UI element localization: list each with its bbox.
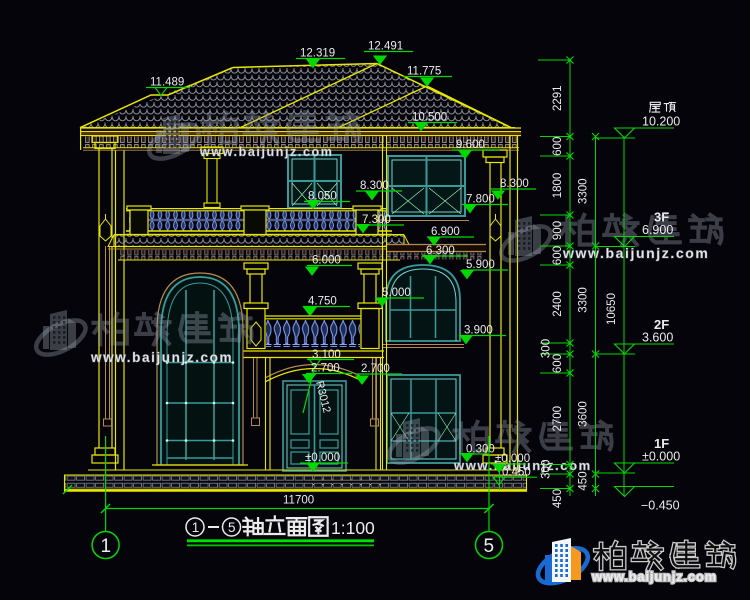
svg-text:2.700: 2.700 [361, 363, 390, 375]
svg-text:www.baijunjz.com: www.baijunjz.com [199, 145, 333, 159]
svg-text:2700: 2700 [552, 406, 564, 432]
svg-text:3300: 3300 [578, 178, 590, 204]
svg-text:10650: 10650 [606, 293, 618, 325]
svg-text:www.baijunjz.com: www.baijunjz.com [90, 350, 233, 365]
svg-text:11.489: 11.489 [150, 77, 184, 89]
svg-text:3600: 3600 [578, 401, 590, 427]
svg-text:12.491: 12.491 [368, 41, 403, 53]
svg-text:600: 600 [552, 354, 564, 373]
svg-text:4.750: 4.750 [308, 296, 337, 308]
svg-text:10.200: 10.200 [642, 115, 680, 129]
svg-text:450: 450 [552, 489, 564, 508]
svg-text:300: 300 [541, 339, 553, 358]
svg-text:5: 5 [484, 536, 495, 557]
svg-text:2291: 2291 [552, 85, 564, 111]
svg-text:www.baijunjz.com: www.baijunjz.com [591, 569, 717, 584]
svg-text:11700: 11700 [283, 495, 314, 507]
svg-text:9.600: 9.600 [456, 139, 485, 151]
svg-text:450: 450 [578, 471, 590, 490]
svg-text:−0.450: −0.450 [641, 499, 680, 513]
svg-text:11.775: 11.775 [407, 66, 441, 78]
svg-text:5.000: 5.000 [382, 287, 411, 299]
svg-text:±0.000: ±0.000 [642, 450, 680, 464]
svg-text:2.700: 2.700 [311, 363, 340, 375]
svg-text:6.000: 6.000 [312, 255, 341, 267]
svg-text:7.800: 7.800 [466, 194, 495, 206]
svg-text:6.900: 6.900 [431, 226, 460, 238]
svg-text:1:100: 1:100 [331, 518, 375, 538]
svg-text:6.900: 6.900 [642, 223, 673, 237]
svg-text:1: 1 [192, 520, 200, 535]
svg-text:±0.000: ±0.000 [305, 452, 340, 464]
svg-text:8.300: 8.300 [360, 180, 389, 192]
svg-text:±0.000: ±0.000 [495, 453, 530, 465]
svg-text:600: 600 [552, 246, 564, 265]
svg-text:8.300: 8.300 [500, 178, 529, 190]
svg-text:10.500: 10.500 [412, 112, 447, 124]
svg-text:www.baijunjz.com: www.baijunjz.com [562, 245, 709, 261]
svg-text:3.900: 3.900 [464, 325, 493, 337]
svg-text:12.319: 12.319 [300, 48, 335, 60]
svg-text:5.900: 5.900 [466, 259, 495, 271]
svg-text:3300: 3300 [578, 287, 590, 313]
svg-text:3.600: 3.600 [642, 331, 673, 345]
svg-text:600: 600 [552, 137, 564, 156]
svg-text:300: 300 [541, 460, 553, 479]
svg-text:5: 5 [228, 520, 236, 535]
svg-text:2400: 2400 [552, 291, 564, 317]
svg-text:1800: 1800 [552, 173, 564, 199]
svg-text:900: 900 [552, 221, 564, 240]
svg-text:1: 1 [101, 536, 112, 557]
